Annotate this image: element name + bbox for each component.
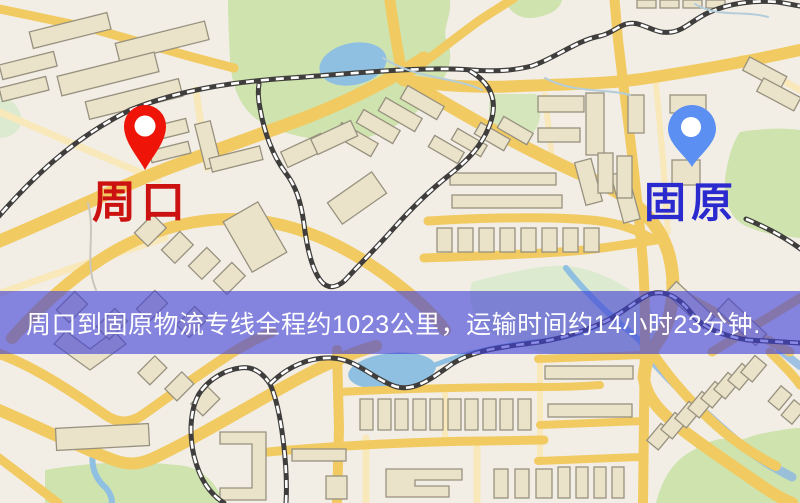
origin-pin[interactable] <box>116 98 176 176</box>
route-banner-text: 周口到固原物流专线全程约1023公里，运输时间约14小时23分钟. <box>0 305 761 341</box>
destination-pin[interactable] <box>664 102 724 174</box>
origin-city-label: 周口 <box>92 181 190 225</box>
map-screenshot: 周口 固原 周口到固原物流专线全程约1023公里，运输时间约14小时23分钟. <box>0 0 800 503</box>
destination-pin-hole <box>681 117 701 137</box>
route-banner: 周口到固原物流专线全程约1023公里，运输时间约14小时23分钟. <box>0 291 800 354</box>
map-canvas[interactable] <box>0 0 800 503</box>
destination-city-label: 固原 <box>644 182 738 224</box>
origin-pin-body <box>124 105 166 170</box>
origin-pin-hole <box>135 116 156 137</box>
